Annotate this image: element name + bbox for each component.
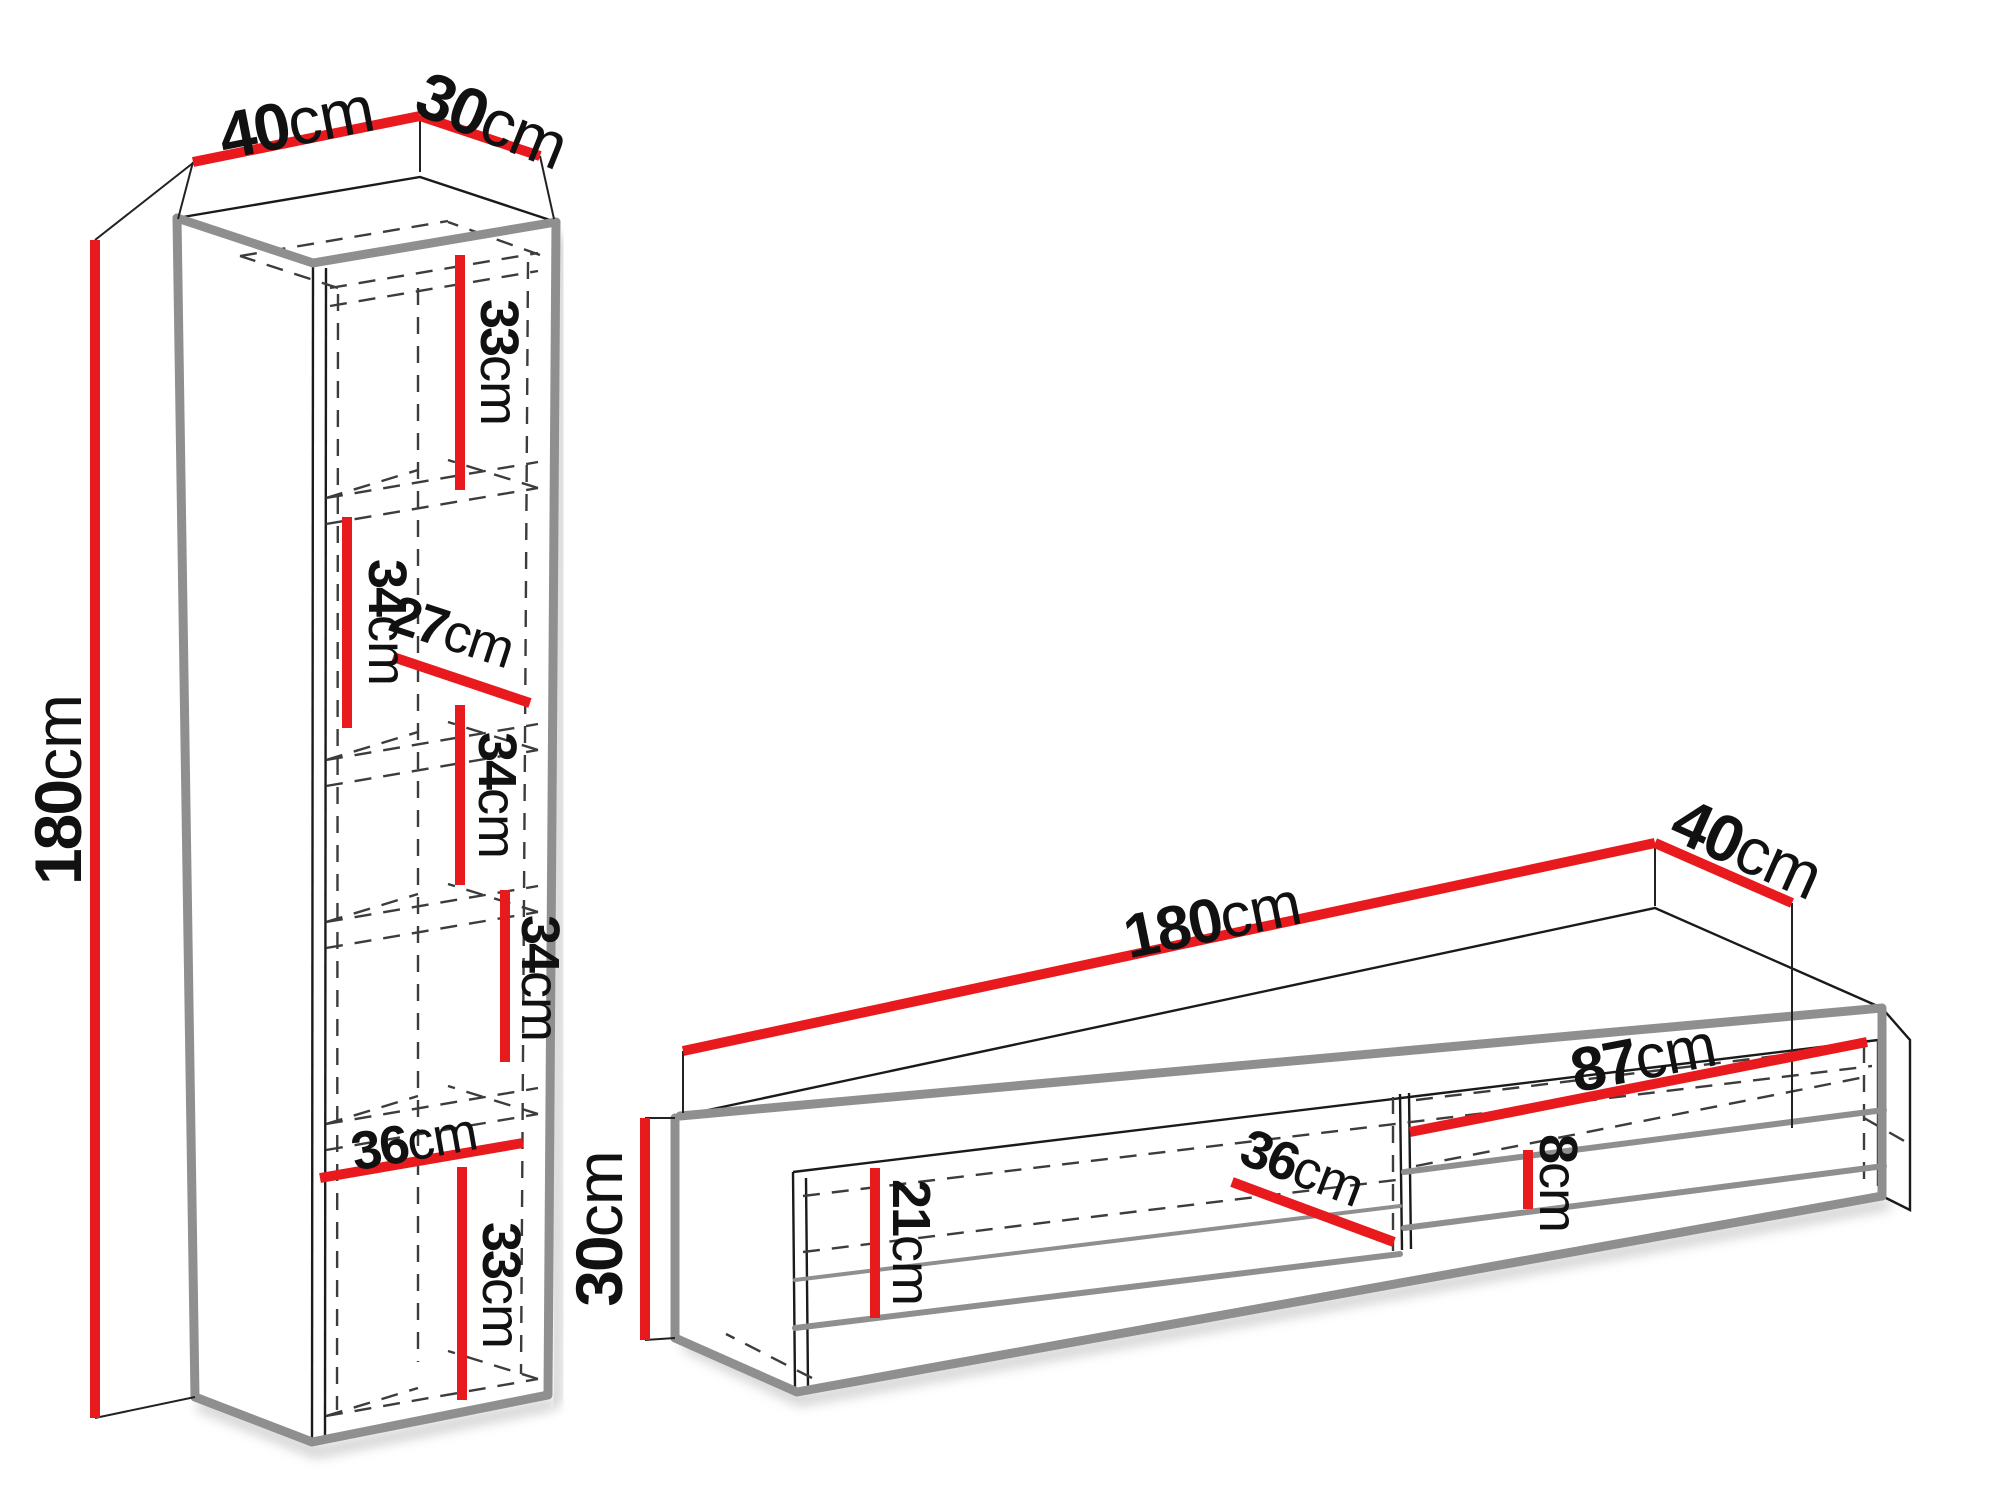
cabinet-compartment3-label: 34cm (467, 732, 527, 858)
tv-stand-gap-height-label: 8cm (1528, 1134, 1588, 1232)
cabinet-compartment4-label: 34cm (510, 915, 570, 1041)
furniture-dimension-diagram: 40cm 30cm 180cm 33cm 34cm 27cm 34cm 34cm… (0, 0, 2000, 1500)
tv-stand-depth-dim-label: 40cm (1661, 783, 1833, 914)
cabinet-side-panel (177, 218, 313, 1442)
tv-stand-width-dim-label: 180cm (1118, 868, 1306, 971)
cabinet-height-dim-label: 180cm (21, 695, 95, 885)
tv-stand-height-dim-label: 30cm (562, 1151, 636, 1306)
cabinet-depth-dim-label: 30cm (406, 57, 578, 184)
wall-cabinet-drawing: 40cm 30cm 180cm 33cm 34cm 27cm 34cm 34cm… (21, 57, 578, 1452)
cabinet-compartment1-label: 33cm (469, 299, 529, 425)
diagram-canvas: 40cm 30cm 180cm 33cm 34cm 27cm 34cm 34cm… (0, 0, 2000, 1500)
tv-stand-niche-height-label: 21cm (881, 1179, 941, 1305)
cabinet-width-dim-label: 40cm (213, 71, 380, 173)
cabinet-compartment5-label: 33cm (471, 1222, 531, 1348)
tv-stand-drawing: 180cm 40cm 30cm 21cm 36cm 87cm 8cm (562, 783, 1917, 1400)
